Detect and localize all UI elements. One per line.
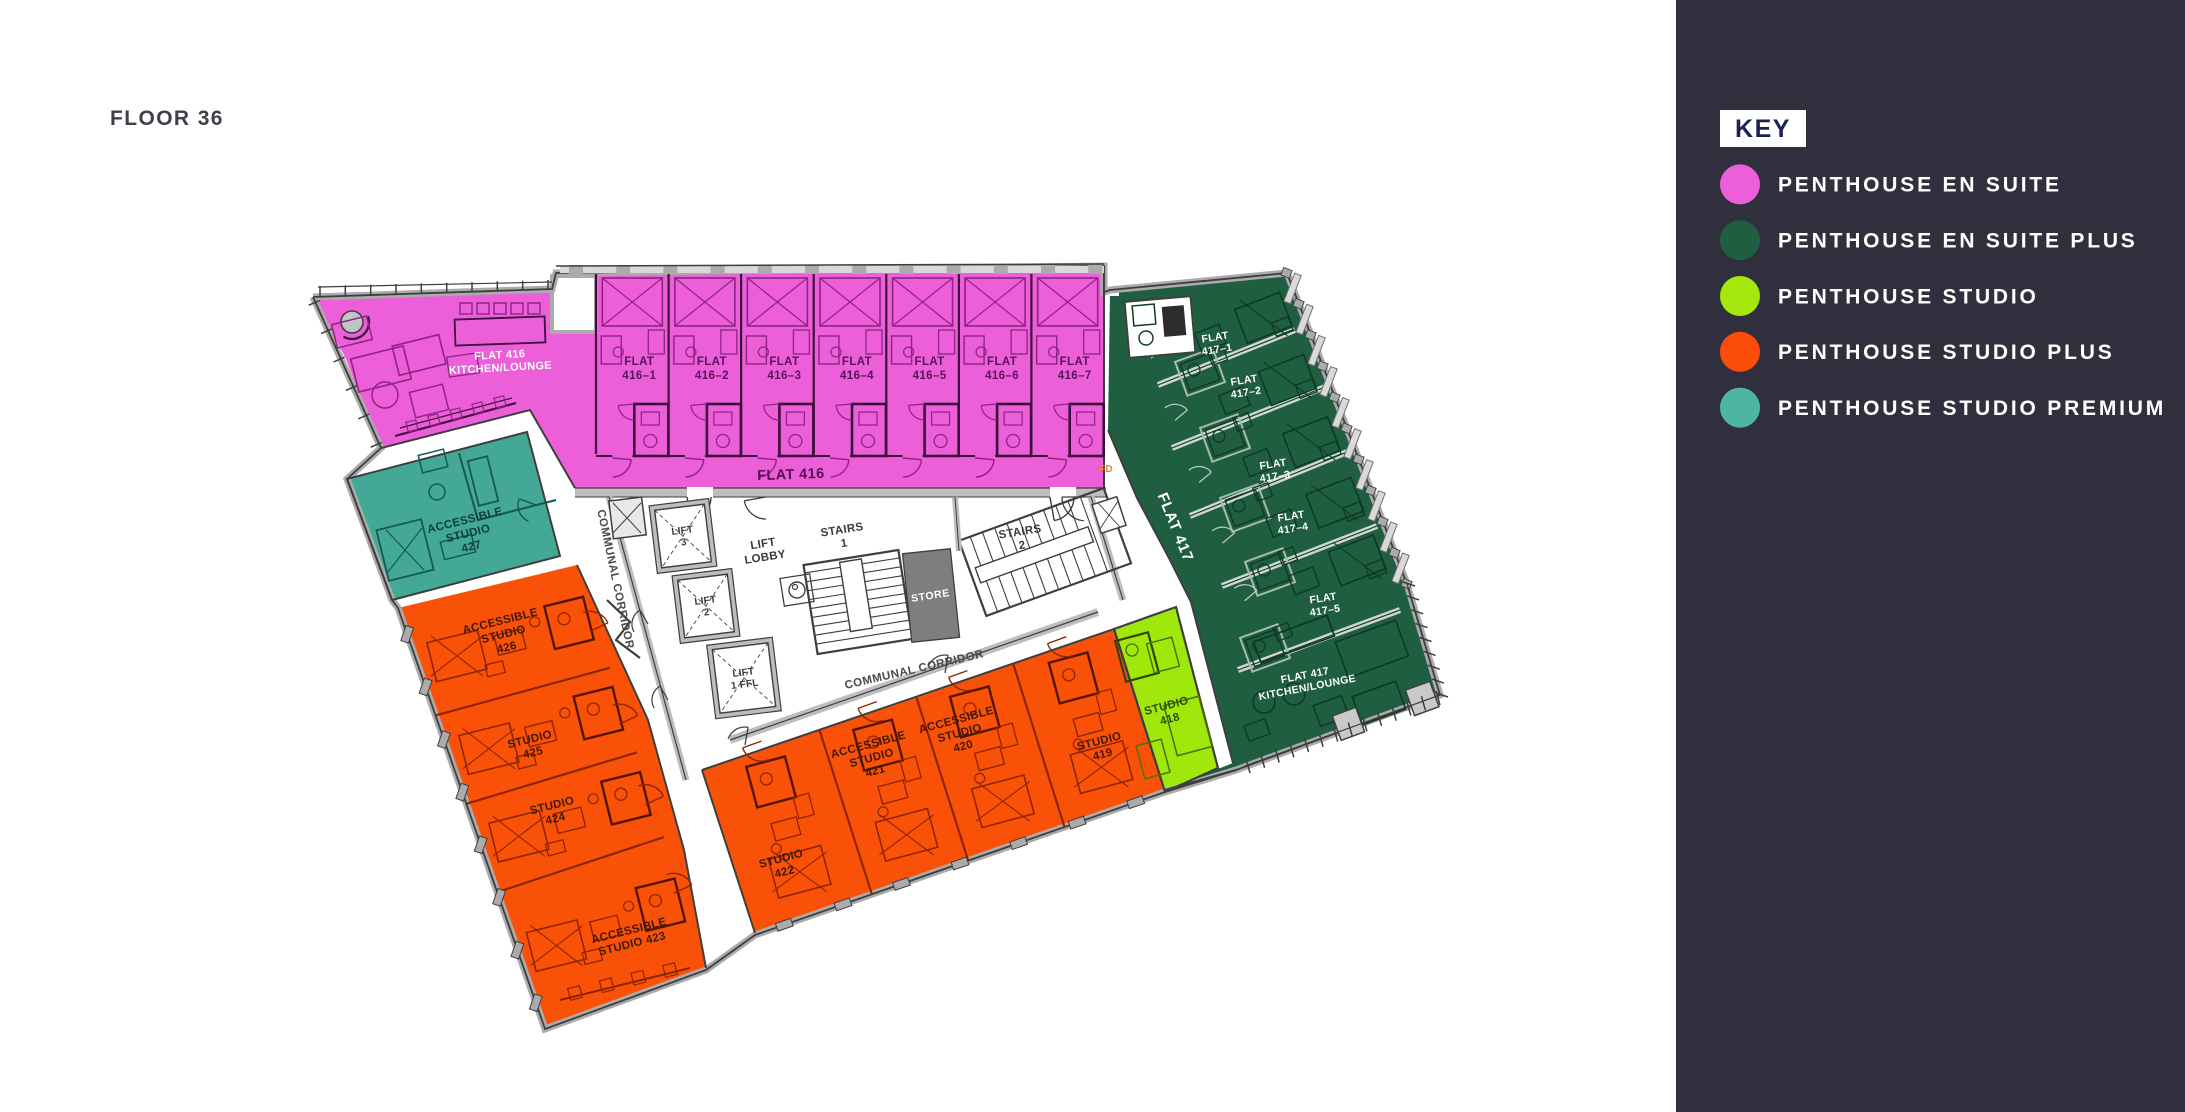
svg-text:PENTHOUSE EN SUITE PLUS: PENTHOUSE EN SUITE PLUS: [1778, 230, 2138, 253]
svg-text:FLAT: FLAT: [915, 356, 945, 368]
svg-text:FLOOR 36: FLOOR 36: [110, 107, 224, 130]
svg-text:416–7: 416–7: [1058, 370, 1092, 382]
svg-text:416–4: 416–4: [840, 370, 874, 382]
svg-text:416–6: 416–6: [985, 370, 1019, 382]
svg-text:FLAT: FLAT: [697, 356, 727, 368]
svg-text:416–1: 416–1: [622, 370, 656, 382]
svg-text:PENTHOUSE STUDIO PLUS: PENTHOUSE STUDIO PLUS: [1778, 341, 2115, 364]
svg-text:PENTHOUSE STUDIO PREMIUM: PENTHOUSE STUDIO PREMIUM: [1778, 397, 2166, 420]
svg-text:FLAT: FLAT: [769, 356, 799, 368]
svg-text:FLAT: FLAT: [624, 356, 654, 368]
svg-text:416–3: 416–3: [767, 370, 801, 382]
svg-text:416–5: 416–5: [913, 370, 947, 382]
svg-text:PENTHOUSE EN SUITE: PENTHOUSE EN SUITE: [1778, 174, 2062, 197]
svg-text:FD: FD: [1099, 464, 1113, 475]
svg-text:FLAT 416: FLAT 416: [757, 466, 825, 484]
svg-text:FLAT: FLAT: [842, 356, 872, 368]
svg-text:PENTHOUSE STUDIO: PENTHOUSE STUDIO: [1778, 285, 2039, 308]
svg-text:FLAT: FLAT: [987, 356, 1017, 368]
svg-text:FLAT: FLAT: [1060, 356, 1090, 368]
svg-text:416–2: 416–2: [695, 370, 729, 382]
svg-text:KEY: KEY: [1735, 115, 1791, 143]
